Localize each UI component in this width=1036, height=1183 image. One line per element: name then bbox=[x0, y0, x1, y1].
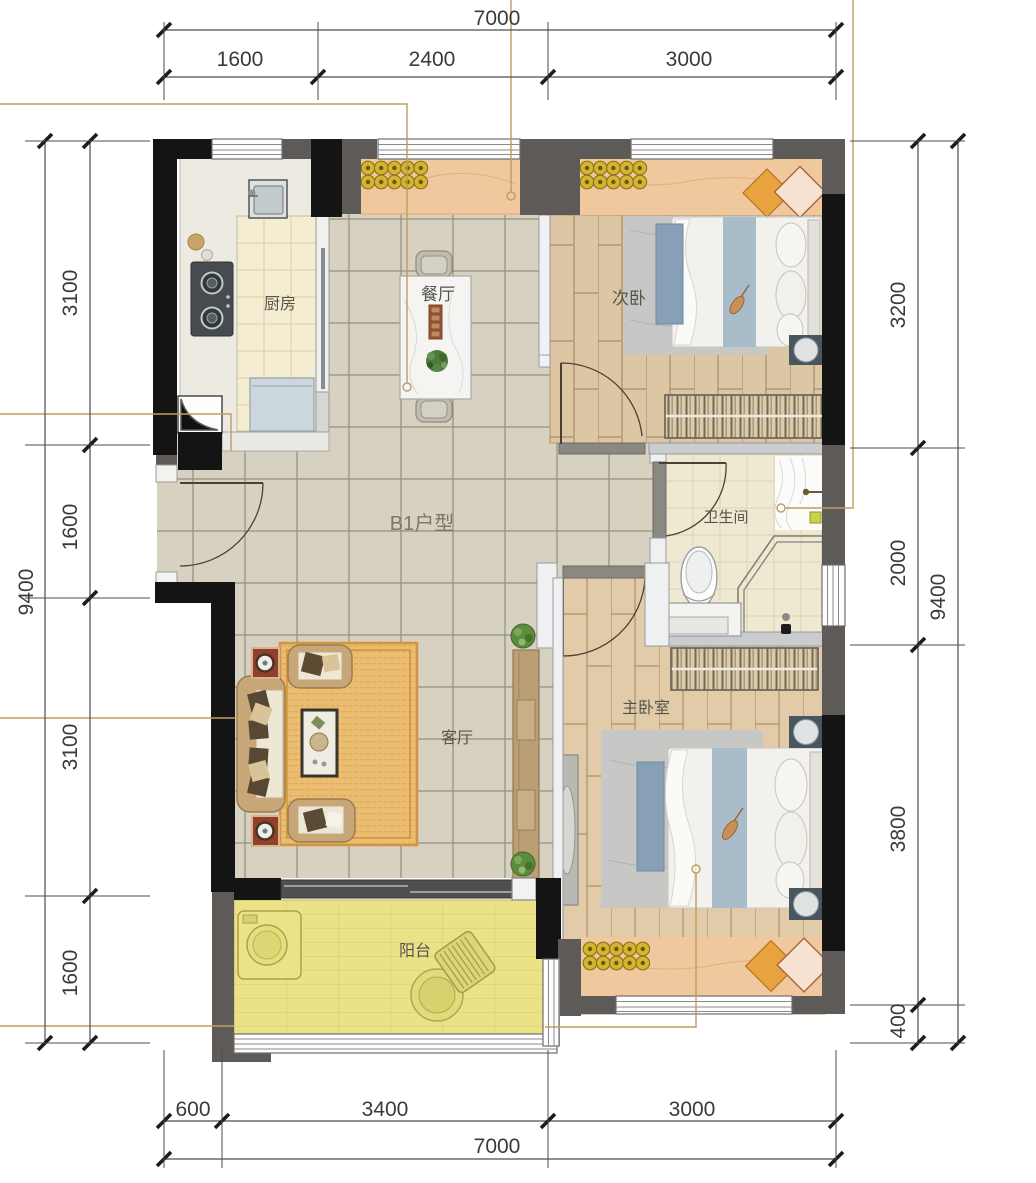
svg-text:3400: 3400 bbox=[362, 1098, 409, 1121]
svg-text:9400: 9400 bbox=[927, 574, 950, 621]
svg-text:3100: 3100 bbox=[59, 270, 82, 317]
svg-text:400: 400 bbox=[887, 1003, 910, 1038]
svg-text:厨房: 厨房 bbox=[264, 295, 296, 313]
svg-text:600: 600 bbox=[175, 1098, 210, 1121]
svg-text:阳台: 阳台 bbox=[399, 942, 431, 960]
svg-text:2400: 2400 bbox=[409, 48, 456, 71]
svg-text:主卧室: 主卧室 bbox=[622, 699, 670, 717]
svg-text:客厅: 客厅 bbox=[441, 729, 473, 747]
svg-text:B1户型: B1户型 bbox=[390, 512, 454, 535]
svg-text:2000: 2000 bbox=[887, 540, 910, 587]
svg-text:卫生间: 卫生间 bbox=[703, 509, 748, 526]
svg-text:3800: 3800 bbox=[887, 806, 910, 853]
svg-text:3000: 3000 bbox=[669, 1098, 716, 1121]
svg-text:3100: 3100 bbox=[59, 724, 82, 771]
svg-text:3200: 3200 bbox=[887, 282, 910, 329]
svg-text:1600: 1600 bbox=[59, 950, 82, 997]
svg-text:餐厅: 餐厅 bbox=[421, 285, 455, 304]
svg-text:1600: 1600 bbox=[217, 48, 264, 71]
svg-text:1600: 1600 bbox=[59, 504, 82, 551]
svg-text:9400: 9400 bbox=[15, 569, 38, 616]
svg-text:3000: 3000 bbox=[666, 48, 713, 71]
svg-text:7000: 7000 bbox=[474, 1135, 521, 1158]
svg-text:次卧: 次卧 bbox=[612, 289, 646, 308]
svg-text:7000: 7000 bbox=[474, 7, 521, 30]
